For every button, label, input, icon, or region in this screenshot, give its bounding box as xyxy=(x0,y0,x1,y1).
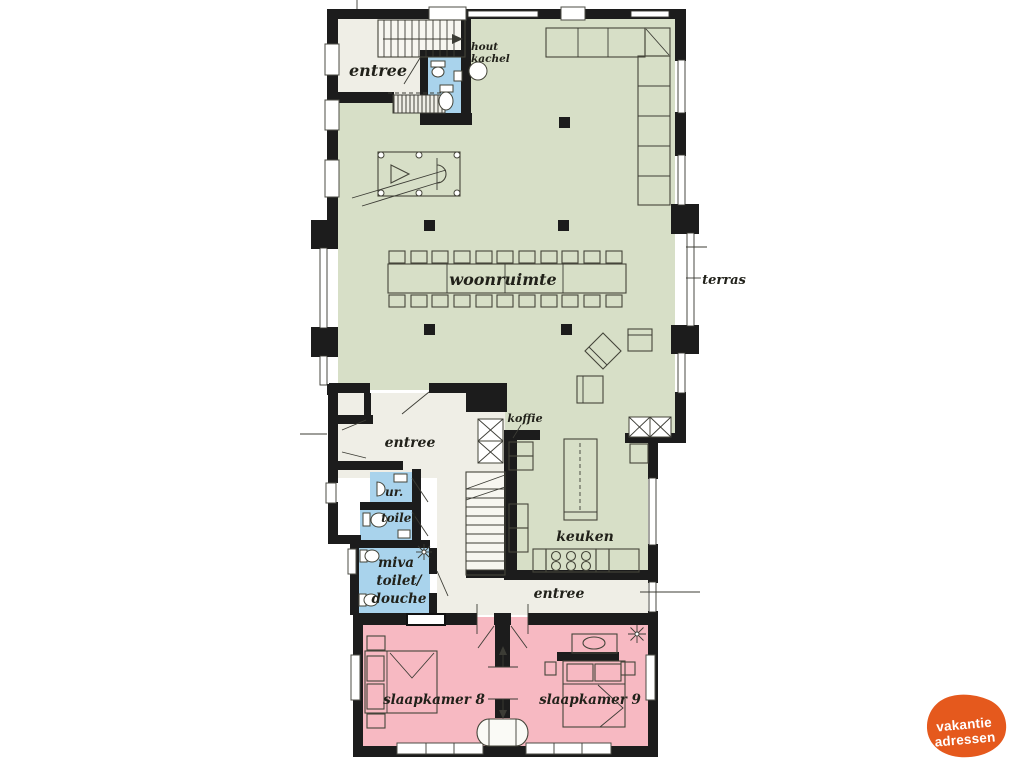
floor-plan-svg: entree hout kachel woonruimte terras kof… xyxy=(0,0,1024,768)
interior-window xyxy=(407,614,445,625)
entrance-bottom-label: entree xyxy=(534,586,585,602)
bedroom8-side-window xyxy=(351,655,360,700)
bedroom9-window xyxy=(646,655,655,700)
terrace-label: terras xyxy=(702,273,746,288)
glazing-right-3 xyxy=(678,353,685,393)
coffee-label: koffie xyxy=(507,412,542,425)
glazing-top-2 xyxy=(631,11,669,17)
window-top-2 xyxy=(561,7,585,20)
toilet-label: toilet xyxy=(381,511,417,525)
toilet-bowl-icon xyxy=(439,92,453,110)
window-top-1 xyxy=(429,7,466,20)
miva-label-3: douche xyxy=(372,591,427,607)
floorplan-image: entree hout kachel woonruimte terras kof… xyxy=(0,0,1024,768)
entrance-door-right xyxy=(649,582,656,612)
glazing-right-2 xyxy=(678,155,685,205)
living-room-label: woonruimte xyxy=(449,270,556,289)
window-left-2 xyxy=(325,100,339,130)
cistern-icon xyxy=(454,71,462,81)
shower-symbol-bedroom9 xyxy=(628,625,646,643)
bedroom9-label: slaapkamer 9 xyxy=(539,692,641,708)
wood-stove-label-1: hout xyxy=(471,41,498,53)
toilet-tank-icon xyxy=(363,513,370,526)
sink-icon xyxy=(431,61,445,67)
urinal-label: ur. xyxy=(385,485,403,499)
sink-icon xyxy=(365,550,379,562)
kitchen-window xyxy=(649,478,656,545)
glazing-top-1 xyxy=(468,11,538,17)
toilet-tank-icon xyxy=(440,85,453,92)
stairwell-floor xyxy=(466,472,505,575)
glazing-right-1 xyxy=(678,60,685,113)
window-left-3 xyxy=(325,160,339,197)
wood-stove-label-2: kachel xyxy=(471,53,510,65)
glazing-left-1 xyxy=(320,248,327,328)
kitchen-label: keuken xyxy=(556,529,614,545)
vakantieadressen-logo: vakantie adressen xyxy=(927,695,1006,758)
bathroom-window xyxy=(348,549,356,574)
entrance-top-label: entree xyxy=(349,61,407,80)
window-left-1 xyxy=(325,44,339,75)
miva-label-1: miva xyxy=(378,555,414,571)
hall-window xyxy=(326,483,336,503)
bench xyxy=(477,719,528,746)
glazing-left-2 xyxy=(320,356,327,385)
miva-label-2: toilet/ xyxy=(376,573,423,589)
entrance-mid-label: entree xyxy=(385,435,436,451)
shower-symbol-miva xyxy=(416,544,432,560)
bedroom8-label: slaapkamer 8 xyxy=(383,692,485,708)
